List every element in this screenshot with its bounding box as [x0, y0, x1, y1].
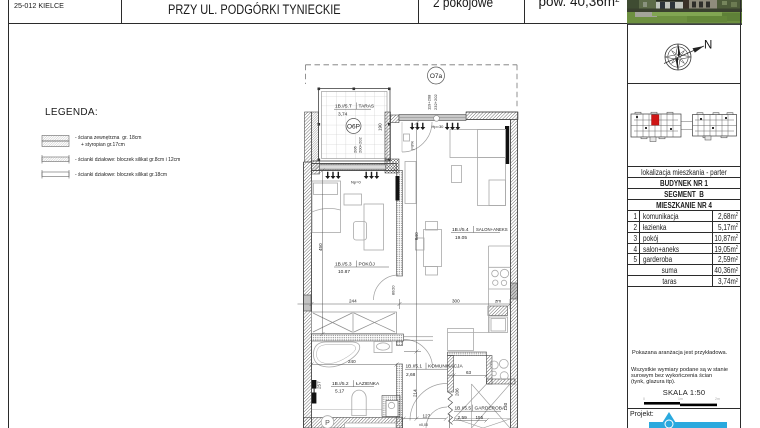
svg-text:zm: zm: [495, 299, 501, 304]
svg-text:1m: 1m: [678, 397, 683, 401]
svg-text:1B.I/5.2: 1B.I/5.2: [332, 381, 349, 387]
svg-text:KOMUNIKACJA: KOMUNIKACJA: [428, 364, 463, 370]
svg-text:O6P: O6P: [347, 123, 360, 130]
svg-text:130: 130: [503, 402, 508, 410]
svg-text:ŁAZIENKA: ŁAZIENKA: [356, 381, 380, 387]
svg-text:190: 190: [378, 123, 383, 131]
svg-text:200+202: 200+202: [357, 137, 362, 153]
svg-text:0: 0: [643, 397, 645, 401]
svg-text:127: 127: [423, 414, 431, 419]
svg-text:1B.I/5.1: 1B.I/5.1: [406, 364, 423, 370]
svg-text:300: 300: [452, 299, 460, 304]
svg-text:244: 244: [349, 299, 357, 304]
svg-text:232+202: 232+202: [433, 94, 438, 110]
svg-text:10.87: 10.87: [338, 269, 350, 275]
svg-text:450: 450: [318, 243, 323, 251]
svg-text:O7a: O7a: [430, 73, 443, 80]
svg-text:2m: 2m: [715, 397, 720, 401]
svg-text:1B.I/5.3: 1B.I/5.3: [335, 261, 352, 267]
svg-text:5.17: 5.17: [335, 389, 345, 395]
svg-text:119+208: 119+208: [427, 94, 432, 110]
svg-text:SALON+ANEKS: SALON+ANEKS: [476, 227, 508, 232]
svg-text:240: 240: [348, 359, 356, 364]
svg-text:1B.I/5.T: 1B.I/5.T: [335, 103, 352, 109]
svg-text:POKÓJ: POKÓJ: [359, 260, 376, 267]
svg-text:640: 640: [414, 232, 419, 240]
svg-text:±0,00: ±0,00: [419, 423, 428, 427]
svg-text:1B.I/5.5: 1B.I/5.5: [455, 406, 472, 412]
svg-text:GARDEROBA: GARDEROBA: [475, 406, 506, 412]
svg-text:63: 63: [466, 370, 472, 375]
svg-text:2,68: 2,68: [406, 372, 416, 378]
svg-text:1B.I/5.4: 1B.I/5.4: [452, 227, 469, 233]
svg-text:3,74: 3,74: [338, 111, 348, 117]
svg-text:j=8%: j=8%: [410, 141, 415, 151]
svg-text:N: N: [704, 40, 712, 52]
svg-text:19.05: 19.05: [455, 235, 467, 241]
svg-text:Np=0: Np=0: [351, 180, 361, 185]
svg-text:P: P: [325, 420, 330, 427]
svg-text:80/20: 80/20: [392, 285, 396, 295]
svg-text:TARAS: TARAS: [359, 103, 375, 109]
svg-text:Hp=30: Hp=30: [432, 124, 445, 129]
svg-text:214: 214: [413, 389, 418, 397]
svg-text:2,59: 2,59: [458, 415, 468, 421]
svg-text:155: 155: [476, 415, 484, 420]
svg-text:206: 206: [455, 388, 460, 396]
svg-text:257: 257: [317, 381, 322, 389]
